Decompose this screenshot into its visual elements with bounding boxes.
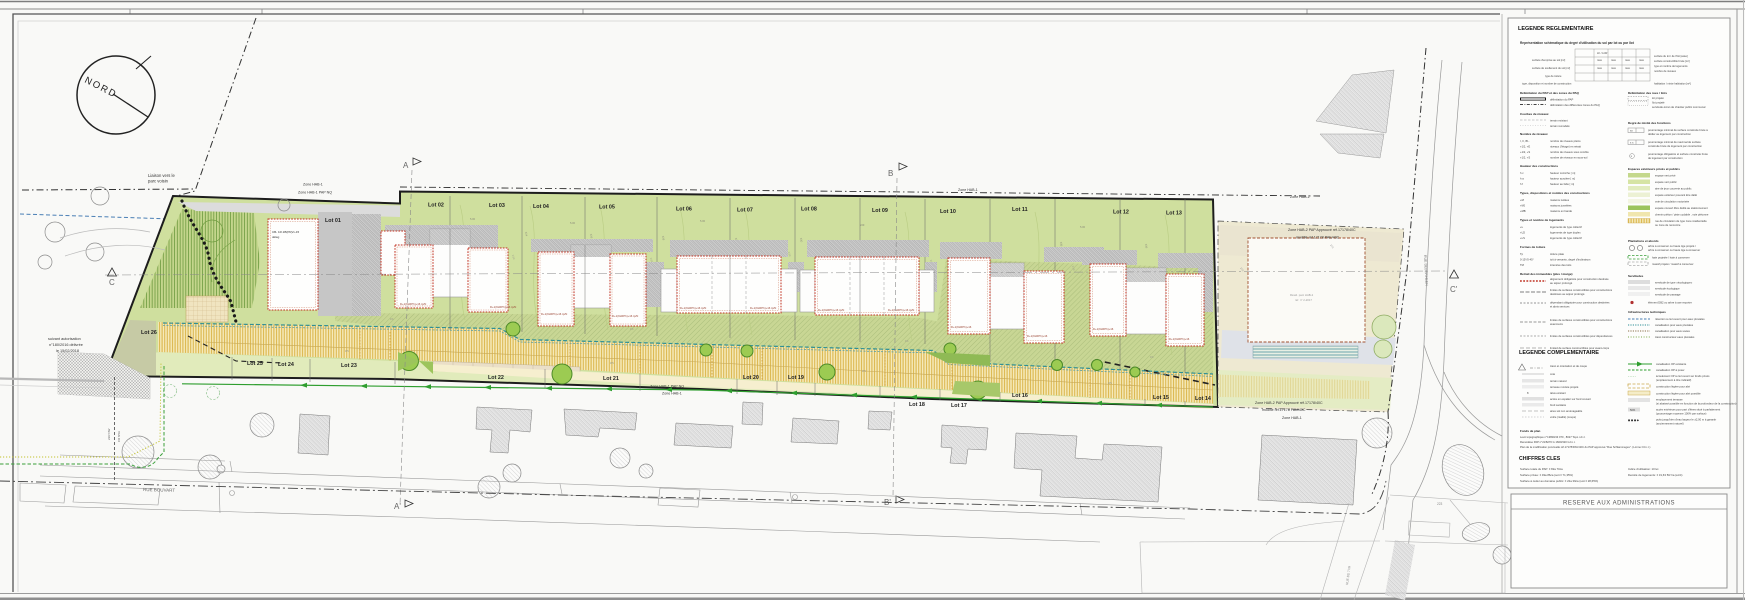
svg-text:emplacement terrasse: emplacement terrasse [1656, 398, 1683, 402]
svg-text:Lot 18: Lot 18 [909, 402, 925, 408]
svg-text:surface de scellement du sol [: surface de scellement du sol [m²] [1532, 66, 1570, 70]
svg-text:arbre à conserver ou haute tig: arbre à conserver ou haute tige à conser… [1648, 248, 1700, 252]
svg-text:WS: WS [862, 370, 866, 373]
svg-text:Indice d'utilisation: 10 let: Indice d'utilisation: 10 let [1628, 467, 1659, 471]
svg-text:Plan de la modification ponctu: Plan de la modification ponctuelle réf.1… [1520, 445, 1650, 449]
svg-text:Surface totale du PAP: ± 82a 7: Surface totale du PAP: ± 82a 70ca [1520, 467, 1563, 471]
svg-text:pourcentage minimal de maximal: pourcentage minimal de maximal de surfac… [1648, 140, 1701, 144]
svg-text:(anciennement naturel): (anciennement naturel) [1656, 422, 1684, 426]
svg-text:RUE BOUVART: RUE BOUVART [143, 487, 175, 493]
svg-text:Densité de logements: ± 31,63: Densité de logements: ± 31,63 50/ ha (éc… [1628, 473, 1682, 477]
svg-text:0-15°/0-45°: 0-15°/0-45° [1520, 258, 1534, 262]
svg-text:(emplacement à titre indicatif: (emplacement à titre indicatif) [1656, 378, 1691, 382]
svg-text:type de toiture: type de toiture [1545, 74, 1562, 78]
svg-text:destinées au séjour prolongé: destinées au séjour prolongé [1550, 292, 1585, 296]
svg-text:surface constructible brute [m: surface constructible brute [m²] [1654, 59, 1690, 63]
svg-text:Plantations et abords: Plantations et abords [1628, 239, 1659, 243]
svg-text:Lot 07: Lot 07 [737, 208, 753, 214]
svg-text:réf. n° 2-2017: réf. n° 2-2017 [1295, 298, 1312, 302]
svg-text:espace extérieur pouvant être: espace extérieur pouvant être dallé [1655, 193, 1697, 197]
svg-text:Lot 15: Lot 15 [1153, 395, 1169, 401]
svg-text:habitation / mixte habitation: habitation / mixte habitation [m²] [1654, 82, 1691, 86]
svg-text:type, disposition et nombre de: type, disposition et nombre de construct… [1522, 82, 1572, 86]
svg-text:Lot 01: Lot 01 [325, 218, 341, 224]
svg-text:niveaux (l'étage) en retrait: niveaux (l'étage) en retrait [1550, 145, 1581, 149]
svg-text:Zone HAB-1: Zone HAB-1 [1282, 416, 1302, 420]
svg-text:Servitudes: Servitudes [1628, 274, 1644, 278]
svg-text:Lot 24: Lot 24 [278, 362, 294, 368]
svg-text:A: A [403, 161, 409, 170]
svg-text:◼ ◼ ◼ ◆: ◼ ◼ ◼ ◆ [1628, 418, 1640, 422]
svg-text:229: 229 [860, 223, 865, 227]
svg-text:surface d'emprise au sol [m²]: surface d'emprise au sol [m²] [1532, 58, 1565, 62]
svg-text:C': C' [1450, 285, 1458, 294]
svg-text:max: max [1625, 67, 1631, 70]
svg-text:+L: +L [1520, 225, 1524, 229]
svg-text:Lot 22: Lot 22 [488, 375, 504, 381]
svg-text:nombre de niveaux en sous-sol: nombre de niveaux en sous-sol [1550, 156, 1588, 160]
svg-text:logements de type collectif: logements de type collectif [1550, 225, 1582, 229]
svg-text:pourcentage minimal de surface: pourcentage minimal de surface construit… [1648, 128, 1708, 132]
svg-text:rue de circulation de type zon: rue de circulation de type zone résident… [1655, 219, 1707, 223]
svg-text:Zone HAB-2 PAP Approuvé réf.17: Zone HAB-2 PAP Approuvé réf.17178/40C [1255, 401, 1323, 405]
svg-text:Zone HAB-1 PAP NQ: Zone HAB-1 PAP NQ [650, 385, 684, 389]
svg-text:D+1(9LRPh)+16 tp/N: D+1(9LRPh)+16 tp/N [541, 312, 567, 316]
svg-text:D+1(9LRPh)+16 tp/N: D+1(9LRPh)+16 tp/N [818, 308, 844, 312]
svg-text:22R NW: 22R NW [107, 428, 111, 440]
svg-text:Courbes de niveaux: Courbes de niveaux [1520, 112, 1549, 116]
svg-text:Résid. parc HAB-2: Résid. parc HAB-2 [1290, 293, 1314, 297]
svg-text:+LD: +LD [1520, 231, 1525, 235]
svg-text:D+1(9LRPh)+16: D+1(9LRPh)+16 [1027, 334, 1048, 338]
svg-text:Lot 21: Lot 21 [603, 376, 619, 382]
svg-text:C: C [109, 278, 115, 287]
svg-text:Fonds de plan: Fonds de plan [1520, 429, 1541, 433]
svg-text:toit à versants, degré d'incli: toit à versants, degré d'inclinaison [1550, 258, 1591, 262]
svg-text:avant-terre: avant-terre [1550, 322, 1564, 326]
svg-text:Représentation schématique du: Représentation schématique du degré d'ut… [1520, 41, 1635, 45]
svg-text:délimitation du PAP: délimitation du PAP [1550, 98, 1573, 102]
svg-text:Délimitation du PAP et des zon: Délimitation du PAP et des zones du PAQ [1520, 91, 1580, 95]
svg-text:servitude écran de chantier pu: servitude écran de chantier public commu… [1652, 105, 1706, 109]
svg-text:logements de type duplex: logements de type duplex [1550, 231, 1581, 235]
svg-text:intensive des toits: intensive des toits [1550, 263, 1572, 267]
svg-text:Délimitation des rues / îlots: Délimitation des rues / îlots [1628, 91, 1667, 95]
svg-text:puits jusqu'bien d'eau largeur: puits jusqu'bien d'eau largeur le ±2,00 … [1656, 418, 1716, 422]
svg-text:Zone HAB-2 PAP Approuvé réf.17: Zone HAB-2 PAP Approuvé réf.17178/40C [1288, 228, 1356, 232]
svg-text:terrain naturel: terrain naturel [1550, 379, 1567, 383]
svg-text:WS: WS [345, 350, 349, 353]
svg-text:Lot 13: Lot 13 [1166, 211, 1182, 217]
svg-text:Formes de toiture: Formes de toiture [1520, 245, 1546, 249]
svg-text:Lot 14: Lot 14 [1195, 396, 1211, 402]
svg-text:Lot 11: Lot 11 [1012, 207, 1028, 213]
svg-text:maisons jumelées: maisons jumelées [1550, 204, 1572, 208]
svg-text:nombre de niveaux: nombre de niveaux [1654, 69, 1677, 73]
svg-text:Lot 08: Lot 08 [801, 207, 817, 213]
svg-text:aires sol non aménageable: aires sol non aménageable [1550, 409, 1583, 413]
svg-text:servitude écologique: servitude écologique [1655, 287, 1680, 291]
svg-text:Lot 26: Lot 26 [141, 330, 157, 336]
svg-text:Lot 10: Lot 10 [940, 209, 956, 215]
svg-text:rétention à ciel ouvert pour e: rétention à ciel ouvert pour eaux pluvia… [1655, 317, 1705, 321]
svg-text:Lot 25: Lot 25 [247, 361, 263, 367]
svg-text:Lot 09: Lot 09 [872, 208, 888, 214]
svg-text:limites de surfaces constructi: limites de surfaces constructibles pour … [1550, 288, 1613, 292]
svg-text:D+1(9LRPh)+16 tp/N: D+1(9LRPh)+16 tp/N [680, 306, 706, 310]
svg-text:I, II, IB...: I, II, IB... [1520, 139, 1530, 143]
svg-text:max: max [1639, 59, 1645, 62]
svg-text:Remodèse PAP n°21/8270 G 1820/: Remodèse PAP n°21/8270 G 1820/320 G.b.i.… [1520, 440, 1576, 444]
svg-text:Types, dispositions et nombre: Types, dispositions et nombre des constr… [1520, 191, 1590, 195]
svg-text:Zone HAB-1: Zone HAB-1 [958, 188, 978, 192]
svg-text:délég: délég [272, 235, 280, 239]
svg-text:voie de circulation motorisée: voie de circulation motorisée [1655, 200, 1690, 204]
svg-text:Surface privée: ± 49a 86ca (so: Surface privée: ± 49a 86ca (soit ± 71,35… [1520, 473, 1573, 477]
svg-text:Tp: Tp [1520, 252, 1524, 256]
svg-text:canalisation OP existante: canalisation OP existante [1656, 362, 1687, 366]
svg-text:h a: h a [1520, 177, 1524, 181]
svg-text:Zone HAB-1 PAP NQ: Zone HAB-1 PAP NQ [298, 191, 332, 195]
svg-text:pourcentage obligatoire et sur: pourcentage obligatoire et surface const… [1648, 152, 1708, 156]
svg-text:maisons en bande: maisons en bande [1550, 209, 1572, 213]
svg-text:LEGENDE COMPLEMENTAIRE: LEGENDE COMPLEMENTAIRE [1519, 350, 1599, 356]
svg-text:max: max [1639, 67, 1645, 70]
svg-text:D+1(9LRPh)+16: D+1(9LRPh)+16 [1093, 327, 1114, 331]
svg-text:arbre à conserver ou haute tig: arbre à conserver ou haute tige projeté … [1648, 244, 1696, 248]
svg-text:LEGENDE REGLEMENTAIRE: LEGENDE REGLEMENTAIRE [1518, 26, 1594, 32]
svg-text:au séjour prolongé: au séjour prolongé [1550, 281, 1573, 285]
svg-text:accès en espalier sur fond cou: accès en espalier sur fond couvert [1550, 397, 1591, 401]
svg-text:max: max [1597, 67, 1603, 70]
svg-text:aire de jeux couverte au publi: aire de jeux couverte au public [1655, 187, 1692, 191]
svg-text:Lot 03: Lot 03 [489, 203, 505, 209]
svg-text:massif projeté / massif à cons: massif projeté / massif à conserver [1652, 262, 1694, 266]
svg-text:terrasse montée projeté: terrasse montée projeté [1550, 385, 1579, 389]
svg-text:terrain existant: terrain existant [1550, 119, 1568, 123]
svg-text:suivant autorisation: suivant autorisation [48, 337, 81, 341]
svg-text:modifié réf.17178 PAU/40C: modifié réf.17178 PAU/40C [1262, 408, 1306, 412]
svg-text:surface du lot / de l'îlot [ax: surface du lot / de l'îlot [axée] [1654, 54, 1688, 58]
svg-text:fond sanitaire: fond sanitaire [1550, 403, 1567, 407]
svg-text:Types et nombre de logements: Types et nombre de logements [1520, 218, 1564, 222]
svg-text:D+1(9LRPh)+16 tp/N: D+1(9LRPh)+16 tp/N [750, 306, 776, 310]
svg-text:Lot 16: Lot 16 [1012, 393, 1028, 399]
svg-text:WS: WS [1108, 382, 1112, 385]
svg-text:(si abaissé possible en foncti: (si abaissé possible en fonction de la p… [1656, 402, 1736, 406]
svg-text:type et nombre de logements: type et nombre de logements [1654, 64, 1688, 68]
svg-text:terrain remodelé: terrain remodelé [1550, 124, 1570, 128]
svg-text:hauteur corniche [ m]: hauteur corniche [ m] [1550, 171, 1575, 175]
svg-text:limites de surfaces constructi: limites de surfaces constructibles pour … [1550, 334, 1613, 338]
svg-text:délimitation des différentes z: délimitation des différentes zones du PA… [1550, 103, 1600, 107]
svg-text:nombre de niveaux sous comble: nombre de niveaux sous comble [1550, 150, 1589, 154]
svg-text:construction légère pour abri: construction légère pour abri [1656, 385, 1690, 389]
svg-text:talus existant: talus existant [1550, 391, 1566, 395]
svg-text:Surface à céder au domaine pub: Surface à céder au domaine public: ± 22a… [1520, 479, 1598, 483]
svg-text:Lot 19: Lot 19 [788, 375, 804, 381]
svg-text:servitude de type «écologique»: servitude de type «écologique» [1655, 281, 1693, 285]
svg-text:écoulement OP à ciel ouvert su: écoulement OP à ciel ouvert sur fonds pr… [1656, 374, 1710, 378]
svg-text:D+1(9LRPh)+16 tp/N: D+1(9LRPh)+16 tp/N [490, 305, 516, 309]
svg-text:CHIFFRES CLES: CHIFFRES CLES [1519, 456, 1561, 462]
svg-text:RESERVE AUX ADMINISTRATIONS: RESERVE AUX ADMINISTRATIONS [1563, 501, 1675, 507]
svg-text:Zone HAB-1: Zone HAB-1 [303, 183, 323, 187]
svg-text:Zone HAB-1: Zone HAB-1 [662, 392, 682, 396]
svg-text:Infrastructures techniques: Infrastructures techniques [1628, 310, 1666, 314]
svg-text:h f: h f [1520, 182, 1523, 186]
svg-text:Lot 04: Lot 04 [533, 204, 549, 210]
svg-text:dépendant obligatoire pour con: dépendant obligatoire pour construction … [1550, 301, 1610, 305]
svg-text:Lot 05: Lot 05 [599, 205, 615, 211]
svg-text:D+1(9LRPh)+16: D+1(9LRPh)+16 [1169, 337, 1190, 341]
svg-text:hauteur au faîte [ m]: hauteur au faîte [ m] [1550, 182, 1574, 186]
svg-text:hauteur acrotère [ m]: hauteur acrotère [ m] [1550, 177, 1575, 181]
svg-text:50%: 50% [1630, 408, 1636, 412]
svg-text:5.00: 5.00 [1080, 225, 1086, 229]
svg-text:espace couvert libre dédié au: espace couvert libre dédié au stationnem… [1655, 206, 1708, 210]
svg-text:Espaces extérieurs privés et p: Espaces extérieurs privés et publics [1628, 167, 1680, 171]
svg-text:+MJ: +MJ [1520, 204, 1526, 208]
svg-text:D+1(9LRPh)+16: D+1(9LRPh)+16 [951, 325, 972, 329]
svg-text:parc voisin: parc voisin [148, 179, 169, 184]
svg-text:espace vert public: espace vert public [1655, 180, 1677, 184]
svg-text:A': A' [394, 502, 401, 511]
svg-text:5.00: 5.00 [570, 221, 576, 225]
svg-text:max: max [1597, 59, 1603, 62]
svg-text:haie projetée / haie à conserv: haie projetée / haie à conserver [1652, 256, 1690, 260]
svg-text:servitude de passage: servitude de passage [1655, 293, 1681, 297]
svg-text:toiture plate: toiture plate [1550, 252, 1565, 256]
svg-text:max: max [1625, 59, 1631, 62]
svg-text:de logement par construction: de logement par construction [1648, 156, 1683, 160]
svg-text:construite brute de logement p: construite brute de logement par constru… [1648, 144, 1702, 148]
svg-text:canalisation OP à poser: canalisation OP à poser [1656, 368, 1685, 372]
svg-text:dédier au logement par constru: dédier au logement par construction [1648, 132, 1691, 136]
svg-text:canalisation pour eaux usées: canalisation pour eaux usées [1655, 329, 1690, 333]
svg-text:Lot 17: Lot 17 [951, 403, 967, 409]
svg-text:CR N5A: CR N5A [117, 431, 121, 442]
svg-text:nombre de niveaux pleins: nombre de niveaux pleins [1550, 139, 1581, 143]
svg-text:construction légère pour abri: construction légère pour abri possible [1656, 392, 1701, 396]
svg-text:Hauteur des constructions: Hauteur des constructions [1520, 164, 1558, 168]
svg-text:Retrait des immeubles (plus /: Retrait des immeubles (plus / marge) [1520, 272, 1573, 276]
svg-text:B: B [888, 169, 893, 178]
svg-text:alignement obligatoire pour co: alignement obligatoire pour construction… [1550, 277, 1609, 281]
svg-text:5.00: 5.00 [470, 217, 476, 221]
svg-text:+LS: +LS [1520, 236, 1525, 240]
svg-text:maisons isolées: maisons isolées [1550, 198, 1570, 202]
svg-text:+1/2, +E: +1/2, +E [1520, 145, 1530, 149]
svg-text:ou zone de rencontre: ou zone de rencontre [1655, 223, 1681, 227]
svg-text:max: max [1611, 59, 1617, 62]
svg-text:Lot 06: Lot 06 [676, 207, 692, 213]
svg-text:D+1(9LRPh)+16 tp/N: D+1(9LRPh)+16 tp/N [612, 314, 638, 318]
svg-text:+1/2, +S: +1/2, +S [1520, 156, 1530, 160]
svg-text:modifié réf.17178 PAE/40C: modifié réf.17178 PAE/40C [1296, 236, 1340, 240]
svg-text:D+1(9LRPh)+16 tp/N: D+1(9LRPh)+16 tp/N [400, 302, 426, 306]
svg-text:îlot projeté: îlot projeté [1651, 101, 1665, 105]
svg-text:chemin piéton / piste cyclable: chemin piéton / piste cyclable , voie pi… [1655, 213, 1709, 217]
svg-text:Lot 02: Lot 02 [428, 203, 444, 209]
svg-text:+1/2, +S: +1/2, +S [1520, 150, 1530, 154]
svg-text:5.00: 5.00 [700, 219, 706, 223]
svg-text:(pourcentage moyenne 100% par: (pourcentage moyenne 100% par surface) [1656, 412, 1706, 416]
svg-text:Lot 20: Lot 20 [743, 375, 759, 381]
svg-text:cote: cote [1550, 372, 1556, 376]
svg-text:espace vert privé: espace vert privé [1655, 174, 1676, 178]
svg-text:D+1(9LRPh)+16 tp/N: D+1(9LRPh)+16 tp/N [888, 308, 914, 312]
svg-text:limites de surfaces construct: limites de surfaces constructibles pour … [1550, 318, 1613, 322]
svg-text:Nombre de niveaux: Nombre de niveaux [1520, 132, 1548, 136]
svg-text:Levé topographique n°13830/43: Levé topographique n°13830/43 070 , 8027… [1520, 435, 1586, 439]
svg-text:+MB: +MB [1520, 209, 1526, 213]
svg-text:accès extérieurs pour part d'ê: accès extérieurs pour part d'êtres situé… [1656, 408, 1720, 412]
svg-text:◦ ◦ ◦ ◦ ◦: ◦ ◦ ◦ ◦ ◦ [1628, 376, 1636, 379]
svg-text:LF / LCR: LF / LCR [1597, 51, 1608, 55]
svg-text:max: max [1611, 67, 1617, 70]
svg-text:et abris services: et abris services [1550, 305, 1570, 309]
svg-text:Liaison vers le: Liaison vers le [148, 173, 175, 178]
svg-text:logements de type collectif: logements de type collectif [1550, 236, 1582, 240]
svg-text:tracé et orientation et de cou: tracé et orientation et de coupe [1550, 364, 1588, 368]
svg-text:canalisation pour eaux pluvial: canalisation pour eaux pluviales [1655, 323, 1694, 327]
svg-text:voirie (réalité) (coupe): voirie (réalité) (coupe) [1550, 415, 1576, 419]
svg-text:Degré de mixité des fonctions: Degré de mixité des fonctions [1628, 121, 1671, 125]
svg-text:Lot 12: Lot 12 [1113, 210, 1129, 216]
svg-text:CB- 1R.1B(PR)/x-15: CB- 1R.1B(PR)/x-15 [272, 230, 300, 234]
svg-text:lot projeté: lot projeté [1652, 96, 1664, 100]
svg-text:élément DB2 ou arbre à axe rep: élément DB2 ou arbre à axe reporter [1648, 301, 1692, 305]
svg-text:223: 223 [1437, 502, 1443, 506]
svg-text:Lot 23: Lot 23 [341, 363, 357, 369]
svg-text:WS: WS [610, 362, 614, 365]
svg-text:n°180/2016 délivrée: n°180/2016 délivrée [49, 343, 83, 347]
svg-text:tracé constructeur eaux pluvia: tracé constructeur eaux pluviales [1655, 335, 1695, 339]
